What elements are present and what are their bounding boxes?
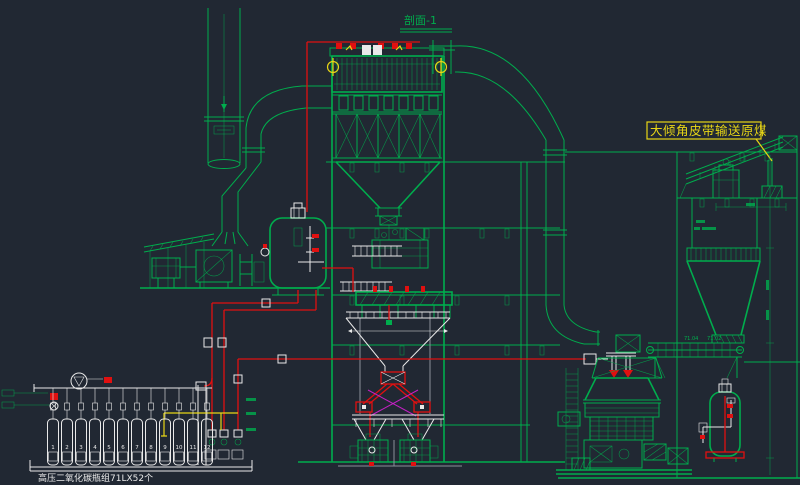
dim-label-2: 71.02 bbox=[707, 336, 721, 342]
section-title: 剖面-1 bbox=[400, 13, 452, 32]
bag-filter bbox=[328, 43, 447, 240]
storage-vessel bbox=[261, 203, 326, 295]
cylinder-caption: 高压二氧化碳瓶组71LX52个 bbox=[38, 472, 153, 484]
cylinder-number: 1 bbox=[51, 445, 55, 451]
cylinder-number: 6 bbox=[121, 445, 125, 451]
diverter-splitter bbox=[356, 372, 430, 437]
right-tank bbox=[699, 379, 744, 462]
co2-cylinder: 6 bbox=[118, 388, 129, 465]
cylinder-number: 10 bbox=[176, 445, 183, 451]
cylinder-number: 7 bbox=[135, 445, 139, 451]
cyclone-hopper bbox=[346, 312, 450, 372]
cylinder-number: 9 bbox=[163, 445, 167, 451]
cylinder-number: 3 bbox=[79, 445, 83, 451]
cylinder-number: 5 bbox=[107, 445, 111, 451]
conveyor-note-label: 大倾角皮带输送原煤 bbox=[650, 123, 767, 138]
co2-cylinder: 12 bbox=[202, 388, 213, 465]
co2-cylinder: 3 bbox=[76, 388, 87, 465]
cylinder-number: 4 bbox=[93, 445, 97, 451]
fan-unit bbox=[144, 234, 264, 288]
co2-cylinder: 7 bbox=[132, 388, 143, 465]
mill-feed-conveyor: 71.04 71.02 bbox=[647, 336, 744, 378]
co2-cylinder: 5 bbox=[104, 388, 115, 465]
co2-cylinder: 11 bbox=[188, 388, 199, 465]
dim-label-1: 71.04 bbox=[684, 336, 698, 342]
cylinder-number: 2 bbox=[65, 445, 69, 451]
co2-cylinder: 2 bbox=[62, 388, 73, 465]
raw-material-silo bbox=[687, 159, 786, 343]
co2-cylinder: 8 bbox=[146, 388, 157, 465]
cad-drawing-canvas: 123456789101112 大倾角皮带输送原煤 7 bbox=[0, 0, 800, 485]
co2-cylinder: 10 bbox=[174, 388, 185, 465]
conveyor-note: 大倾角皮带输送原煤 bbox=[647, 122, 772, 161]
dimension-lines bbox=[766, 155, 774, 475]
yellow-piping bbox=[161, 413, 238, 436]
co2-cylinder: 4 bbox=[90, 388, 101, 465]
cylinder-number: 11 bbox=[190, 445, 197, 451]
exhaust-stack bbox=[204, 8, 244, 169]
building-grid bbox=[140, 56, 800, 478]
co2-cylinder-rack: 123456789101112 bbox=[2, 373, 252, 471]
co2-cylinder-bottles: 123456789101112 bbox=[48, 388, 213, 465]
section-label: 剖面-1 bbox=[404, 13, 437, 27]
cylinder-number: 12 bbox=[204, 445, 211, 451]
cylinder-number: 8 bbox=[149, 445, 153, 451]
co2-cylinder: 9 bbox=[160, 388, 171, 465]
duct-filter-to-mill bbox=[429, 40, 600, 346]
classifier-platform bbox=[340, 228, 452, 318]
